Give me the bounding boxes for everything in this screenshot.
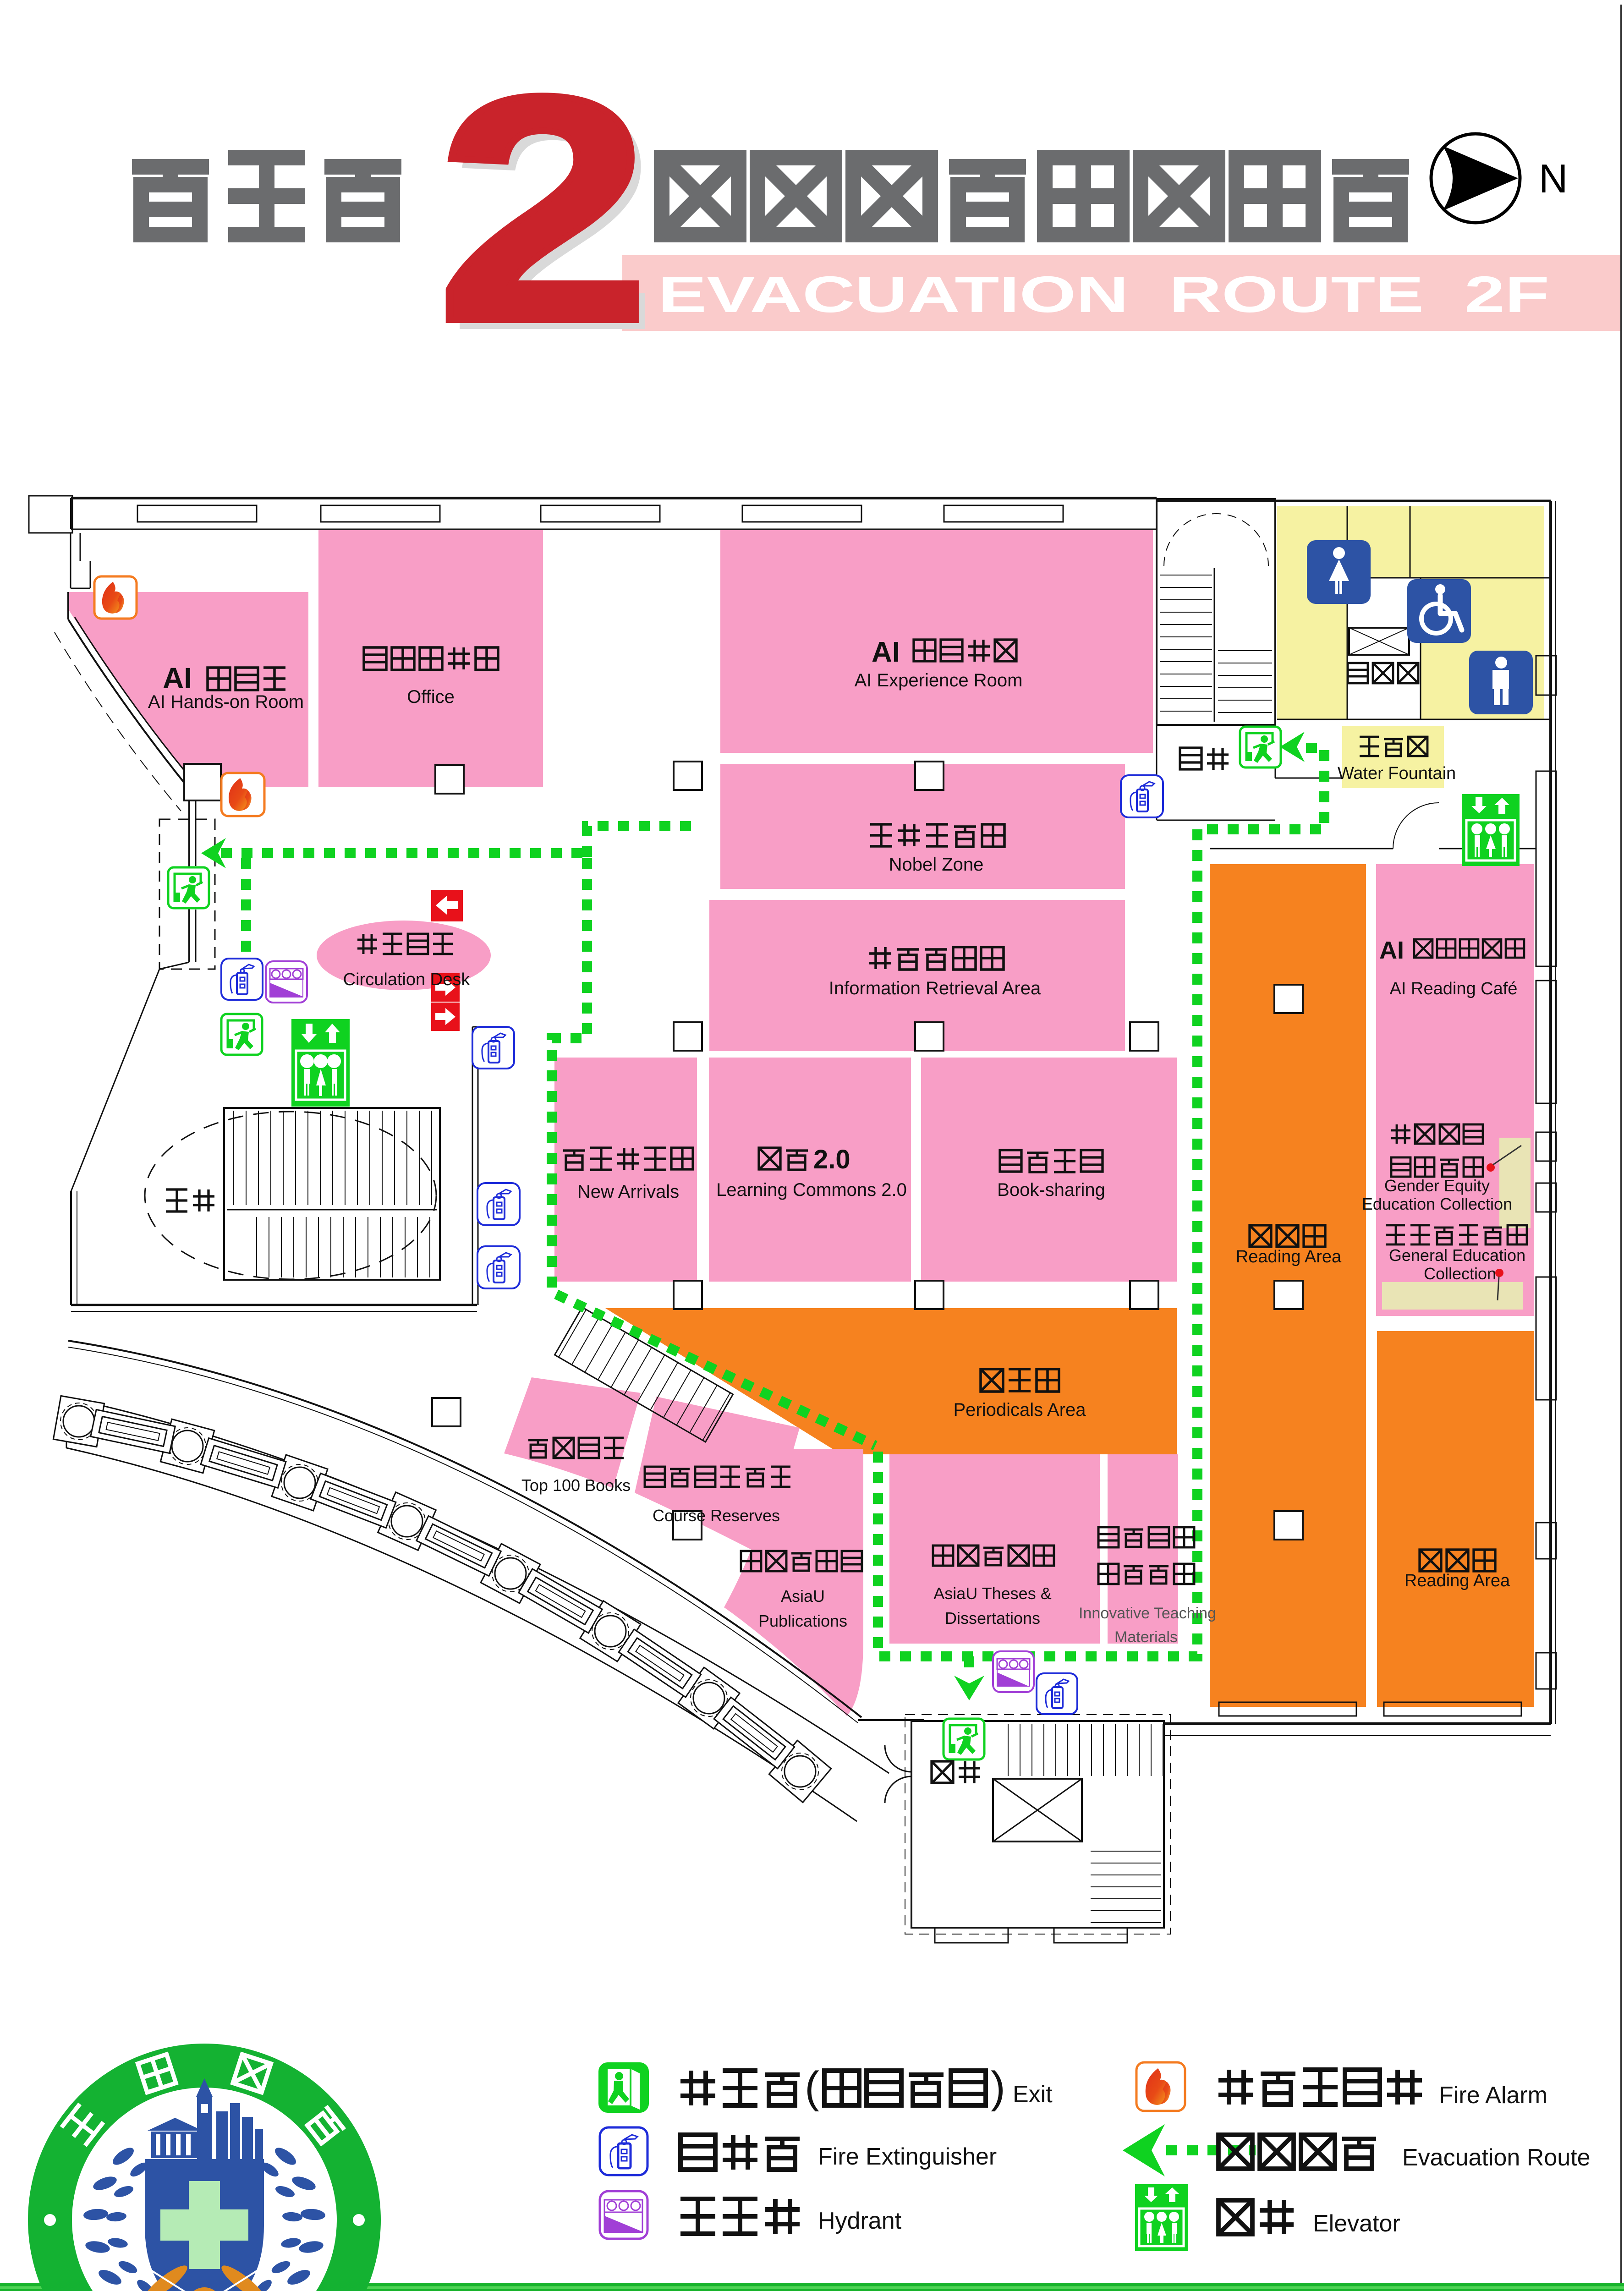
svg-text:Course Reserves: Course Reserves	[653, 1506, 780, 1525]
svg-text:AI: AI	[163, 662, 192, 695]
svg-text:Book-sharing: Book-sharing	[997, 1180, 1105, 1200]
svg-text:AI Reading Café: AI Reading Café	[1390, 979, 1518, 998]
svg-text:General Education: General Education	[1389, 1246, 1525, 1265]
svg-text:AI: AI	[872, 636, 900, 668]
svg-text:Collection: Collection	[1424, 1264, 1496, 1283]
svg-text:Elevator: Elevator	[1313, 2210, 1400, 2237]
svg-text:2.0: 2.0	[813, 1145, 850, 1174]
svg-text:Learning Commons 2.0: Learning Commons 2.0	[716, 1180, 907, 1200]
svg-text:): )	[991, 2063, 1005, 2112]
svg-text:Reading Area: Reading Area	[1236, 1247, 1342, 1266]
svg-text:Dissertations: Dissertations	[945, 1609, 1040, 1628]
svg-text:AI: AI	[1379, 937, 1404, 964]
svg-text:AsiaU Theses &: AsiaU Theses &	[933, 1584, 1051, 1603]
svg-text:EVACUATION ROUTE 2F: EVACUATION ROUTE 2F	[658, 266, 1549, 323]
svg-text:(: (	[805, 2063, 819, 2112]
svg-text:Water Fountain: Water Fountain	[1338, 764, 1456, 783]
svg-text:Nobel Zone: Nobel Zone	[889, 855, 984, 875]
svg-text:Hydrant: Hydrant	[818, 2208, 902, 2234]
svg-text:AsiaU: AsiaU	[781, 1587, 825, 1606]
svg-text:Fire Alarm: Fire Alarm	[1439, 2082, 1547, 2109]
svg-text:Exit: Exit	[1013, 2081, 1053, 2108]
svg-text:Information Retrieval Area: Information Retrieval Area	[829, 978, 1041, 998]
svg-text:Gender Equity: Gender Equity	[1384, 1176, 1490, 1195]
svg-text:Evacuation Route: Evacuation Route	[1402, 2144, 1591, 2171]
svg-text:Fire Extinguisher: Fire Extinguisher	[818, 2143, 997, 2170]
svg-text:New Arrivals: New Arrivals	[577, 1182, 679, 1202]
svg-text:Publications: Publications	[758, 1611, 847, 1630]
svg-text:Office: Office	[407, 687, 455, 707]
svg-text:Materials: Materials	[1114, 1628, 1178, 1646]
svg-text:Top 100 Books: Top 100 Books	[521, 1476, 631, 1495]
svg-text:AI Experience Room: AI Experience Room	[855, 670, 1023, 691]
svg-text:Education Collection: Education Collection	[1362, 1195, 1512, 1213]
svg-text:Circulation Desk: Circulation Desk	[343, 970, 471, 989]
svg-text:2: 2	[436, 29, 650, 388]
svg-text:AI Hands-on Room: AI Hands-on Room	[148, 692, 304, 712]
svg-text:Innovative Teaching: Innovative Teaching	[1079, 1605, 1216, 1622]
svg-text:N: N	[1539, 156, 1568, 201]
svg-text:Reading Area: Reading Area	[1405, 1571, 1510, 1590]
svg-text:Periodicals Area: Periodicals Area	[953, 1400, 1086, 1420]
